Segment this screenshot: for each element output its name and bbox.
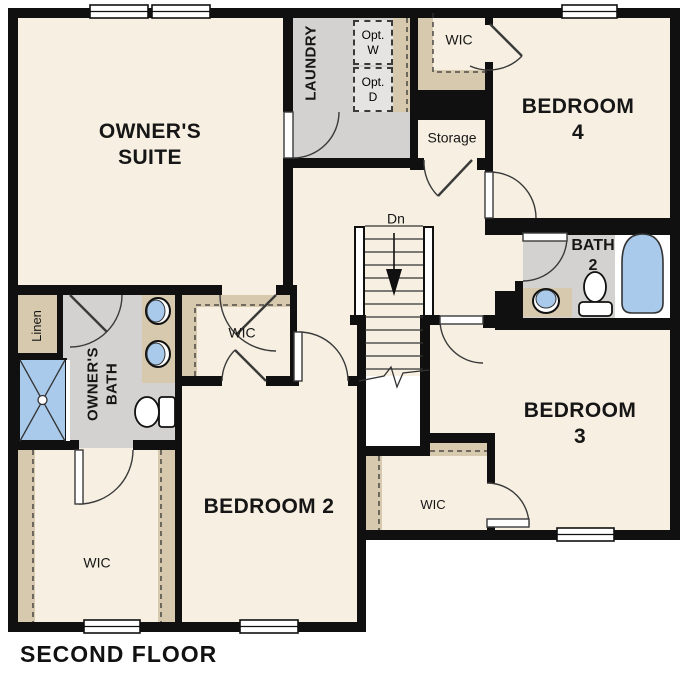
bedroom2-door-leaf (294, 332, 302, 381)
shower-detail (20, 360, 70, 441)
wic-bedroom2-door-leaf (235, 350, 266, 381)
stairs-dn-label: Dn (387, 210, 405, 228)
owners-bath-door-leaf (70, 295, 107, 332)
owners-bath-label: OWNER'S BATH (84, 347, 122, 421)
bath2-door-leaf (523, 233, 567, 241)
sink (536, 290, 556, 308)
owners-wic-door-arc (79, 450, 133, 504)
bedroom4-label: BEDROOM 4 (522, 94, 634, 147)
window (152, 5, 210, 18)
sink (147, 343, 165, 365)
bath2-sink (533, 289, 559, 313)
owners-suite-label: OWNER'S SUITE (99, 119, 201, 172)
laundry-label: LAUNDRY (303, 25, 322, 101)
owners-wic-door-leaf (75, 450, 83, 504)
window (562, 5, 617, 18)
angled-door-leaves (70, 24, 522, 381)
wic-laundry-door-leaf (490, 24, 522, 56)
storage-label: Storage (427, 129, 476, 147)
wic-bedroom2-label: WIC (228, 324, 255, 342)
wic-bedroom2-door-arc (222, 350, 235, 381)
sink (147, 300, 165, 322)
stair-down-arrow-head (386, 269, 402, 296)
shower-drain (38, 396, 47, 405)
bedroom4-door-leaf (485, 172, 493, 218)
stair-break-line (359, 367, 429, 387)
window (84, 620, 140, 633)
bedroom4-door-arc (490, 172, 536, 218)
owners-bath-sinks (146, 298, 170, 367)
bedroom2-label: BEDROOM 2 (204, 494, 335, 520)
bedroom3-label: BEDROOM 3 (524, 398, 636, 451)
laundry-door-leaf (284, 112, 293, 158)
window (240, 620, 298, 633)
bedroom2-door-arc (299, 332, 348, 381)
owners-wic-label: WIC (83, 554, 110, 572)
bath2-door-arc (523, 237, 567, 281)
plan-caption: SECOND FLOOR (20, 641, 217, 668)
storage-door-arc (424, 160, 438, 196)
linen-label: Linen (29, 310, 45, 342)
wic-bedroom3-label: WIC (420, 497, 445, 513)
window (90, 5, 148, 18)
storage-door-leaf (438, 160, 472, 196)
wic-laundry-door-arc (470, 56, 522, 70)
floor-plan: Opt. W Opt. D (0, 0, 687, 687)
shower-door-gap (66, 360, 70, 441)
bath2-label: BATH 2 (571, 236, 614, 276)
wic-bedroom3-door-leaf (487, 519, 529, 527)
owners-bath-toilet (135, 397, 175, 427)
bedroom3-door-arc (440, 320, 483, 363)
wic-laundry-label: WIC (445, 31, 472, 49)
bedroom3-door-leaf (440, 316, 483, 324)
bathtub (622, 234, 663, 313)
laundry-door-arc (293, 112, 339, 158)
window (557, 528, 614, 541)
bath2-toilet (579, 272, 612, 316)
